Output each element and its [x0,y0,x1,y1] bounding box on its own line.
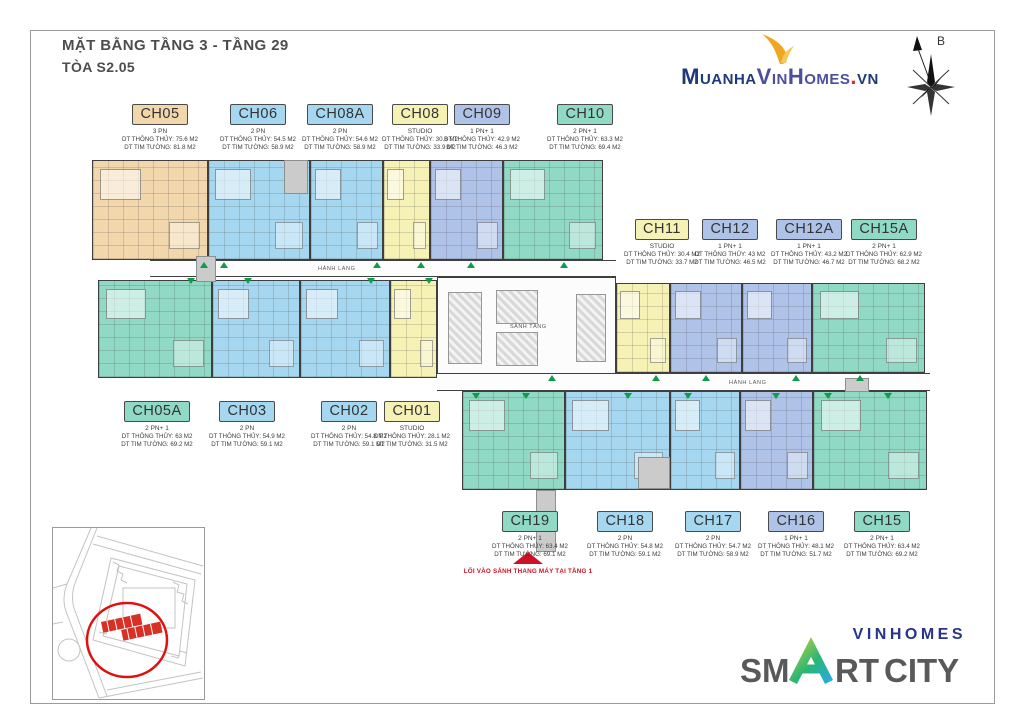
unit-area-wall-CH15A: DT TIM TƯỜNG: 68.2 M2 [819,259,949,266]
corridor-direction-marker [373,262,381,268]
muanhavinhomes-logo: MuanhaVinHomes.vn [650,36,910,94]
unit-code-CH05: CH05 [132,104,187,125]
plan-unit-CH05 [92,160,208,260]
logo-text-vinhomes: VinHomes [757,64,851,89]
plan-unit-CH10 [503,160,603,260]
plan-unit-CH05A [98,280,212,378]
corridor-direction-marker [702,375,710,381]
title-floor-range: MẶT BẰNG TẦNG 3 - TẦNG 29 [62,37,289,54]
footer-sm-text: SM [740,652,790,689]
unit-code-CH09: CH09 [454,104,509,125]
corridor-direction-marker [624,393,632,399]
unit-area-wall-CH01: DT TIM TƯỜNG: 31.5 M2 [347,441,477,448]
corridor-direction-marker [856,375,864,381]
corridor-direction-marker [792,375,800,381]
unit-area-clear-CH01: DT THÔNG THỦY: 28.1 M2 [347,433,477,440]
plan-unit-CH12 [670,283,742,373]
unit-code-CH18: CH18 [597,511,652,532]
plan-unit-CH19 [462,391,565,490]
footer-rt-text: RT [835,652,879,689]
unit-type-CH15A: 2 PN+ 1 [819,243,949,250]
corridor-direction-marker [472,393,480,399]
unit-code-CH03: CH03 [219,401,274,422]
unit-area-clear-CH15A: DT THÔNG THỦY: 62.9 M2 [819,251,949,258]
plan-unit-CH08A [310,160,383,260]
logo-text-dot: . [850,64,857,89]
smartcity-logo-svg: VINHOMES SM RT CITY [738,616,982,696]
unit-code-CH10: CH10 [557,104,612,125]
plan-unit-CH17 [670,391,740,490]
corridor-direction-marker [772,393,780,399]
corridor-label-top: HÀNH LANG [318,266,356,272]
compass-north-label: B [937,34,945,48]
corridor-direction-marker [467,262,475,268]
corridor-direction-marker [884,393,892,399]
unit-label-CH15: CH152 PN+ 1DT THÔNG THỦY: 63.4 M2DT TIM … [817,511,947,558]
stairwell-1 [496,290,538,324]
corridor-direction-marker [244,278,252,284]
footer-brand-text: VINHOMES [853,626,966,643]
elevator-bank [448,292,482,364]
corridor-direction-marker [220,262,228,268]
corridor-direction-marker [200,262,208,268]
site-map-inset [52,527,205,700]
bird-swoosh-icon [758,32,802,66]
stairwell-2 [496,332,538,366]
lobby-label: SẢNH TẦNG [510,324,547,330]
plan-unit-CH09 [430,160,503,260]
plan-unit-CH15A [812,283,925,373]
unit-code-CH15A: CH15A [851,219,916,240]
muanhavinhomes-wordmark: MuanhaVinHomes.vn [650,64,910,90]
unit-type-CH01: STUDIO [347,425,477,432]
plan-unit-CH08 [383,160,430,260]
plan-unit-CH01 [390,280,437,378]
corridor-direction-marker [548,375,556,381]
unit-label-CH01: CH01STUDIODT THÔNG THỦY: 28.1 M2DT TIM T… [347,401,477,448]
page-title: MẶT BẰNG TẦNG 3 - TẦNG 29 TÒA S2.05 [62,37,289,75]
compass-rose: B [905,32,957,118]
unit-type-CH15: 2 PN+ 1 [817,535,947,542]
logo-text-muanha: Muanha [681,64,757,89]
title-tower: TÒA S2.05 [62,59,289,75]
unit-area-clear-CH10: DT THÔNG THỦY: 63.3 M2 [520,136,650,143]
footer-city-text: CITY [884,652,959,689]
corridor-direction-marker [684,393,692,399]
plan-unit-CH02 [300,280,390,378]
corridor-direction-marker [367,278,375,284]
unit-code-CH16: CH16 [768,511,823,532]
compass-star-icon [905,32,957,118]
plan-core-lobby: SẢNH TẦNG [437,277,616,378]
site-map-drawing [53,528,204,699]
plan-unit-CH12A [742,283,812,373]
unit-code-CH01: CH01 [384,401,439,422]
unit-area-clear-CH15: DT THÔNG THỦY: 63.4 M2 [817,543,947,550]
shaft-top-wing [284,160,308,194]
plan-unit-CH11 [616,283,670,373]
corridor-direction-marker [560,262,568,268]
plan-unit-CH03 [212,280,300,378]
shaft-bottom-wing [638,457,670,489]
unit-code-CH05A: CH05A [124,401,189,422]
plan-unit-CH15 [813,391,927,490]
corridor-direction-marker [652,375,660,381]
corridor-direction-marker [417,262,425,268]
service-shaft [576,294,606,362]
unit-area-wall-CH10: DT TIM TƯỜNG: 69.4 M2 [520,144,650,151]
logo-text-vn: vn [857,64,879,89]
unit-label-CH15A: CH15A2 PN+ 1DT THÔNG THỦY: 62.9 M2DT TIM… [819,219,949,266]
unit-area-wall-CH15: DT TIM TƯỜNG: 69.2 M2 [817,551,947,558]
floorplan-page: { "title": { "line1": "MẶT BẰNG TẦNG 3 -… [0,0,1024,724]
corridor-direction-marker [425,278,433,284]
vinhomes-smartcity-logo: VINHOMES SM RT CITY [738,616,982,696]
unit-code-CH19: CH19 [502,511,557,532]
corridor-direction-marker [824,393,832,399]
corridor-label-bottom: HÀNH LANG [729,380,767,386]
unit-label-CH10: CH102 PN+ 1DT THÔNG THỦY: 63.3 M2DT TIM … [520,104,650,151]
connector-stub-left [196,256,216,282]
unit-type-CH10: 2 PN+ 1 [520,128,650,135]
entry-note: LỐI VÀO SẢNH THANG MÁY TẠI TẦNG 1 [464,568,593,575]
unit-code-CH15: CH15 [854,511,909,532]
smartcity-a-mark [793,647,829,682]
plan-unit-CH16 [740,391,813,490]
corridor-direction-marker [522,393,530,399]
corridor-direction-marker [187,278,195,284]
